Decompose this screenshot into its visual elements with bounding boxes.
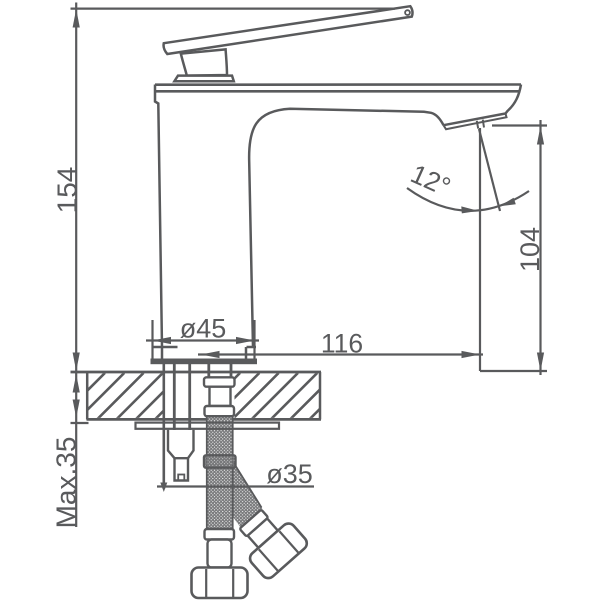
- svg-text:154: 154: [52, 167, 83, 214]
- svg-text:ø35: ø35: [266, 459, 313, 489]
- svg-text:104: 104: [515, 227, 545, 272]
- svg-text:ø45: ø45: [180, 314, 227, 344]
- svg-text:116: 116: [321, 329, 363, 359]
- svg-text:Max.35: Max.35: [51, 437, 82, 529]
